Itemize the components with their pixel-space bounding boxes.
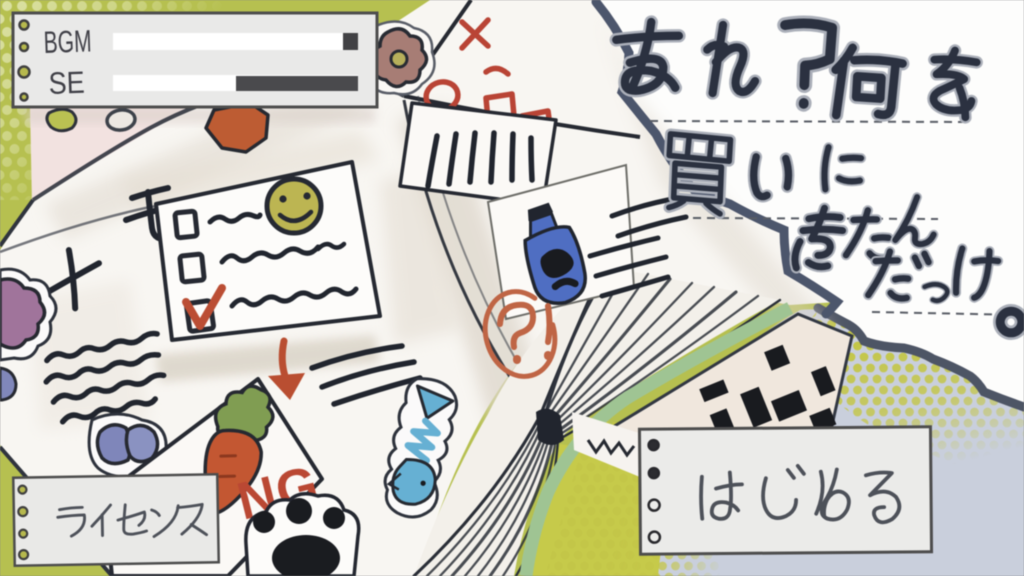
svg-text:BGM: BGM [43,23,92,60]
svg-text:SE: SE [48,65,85,101]
